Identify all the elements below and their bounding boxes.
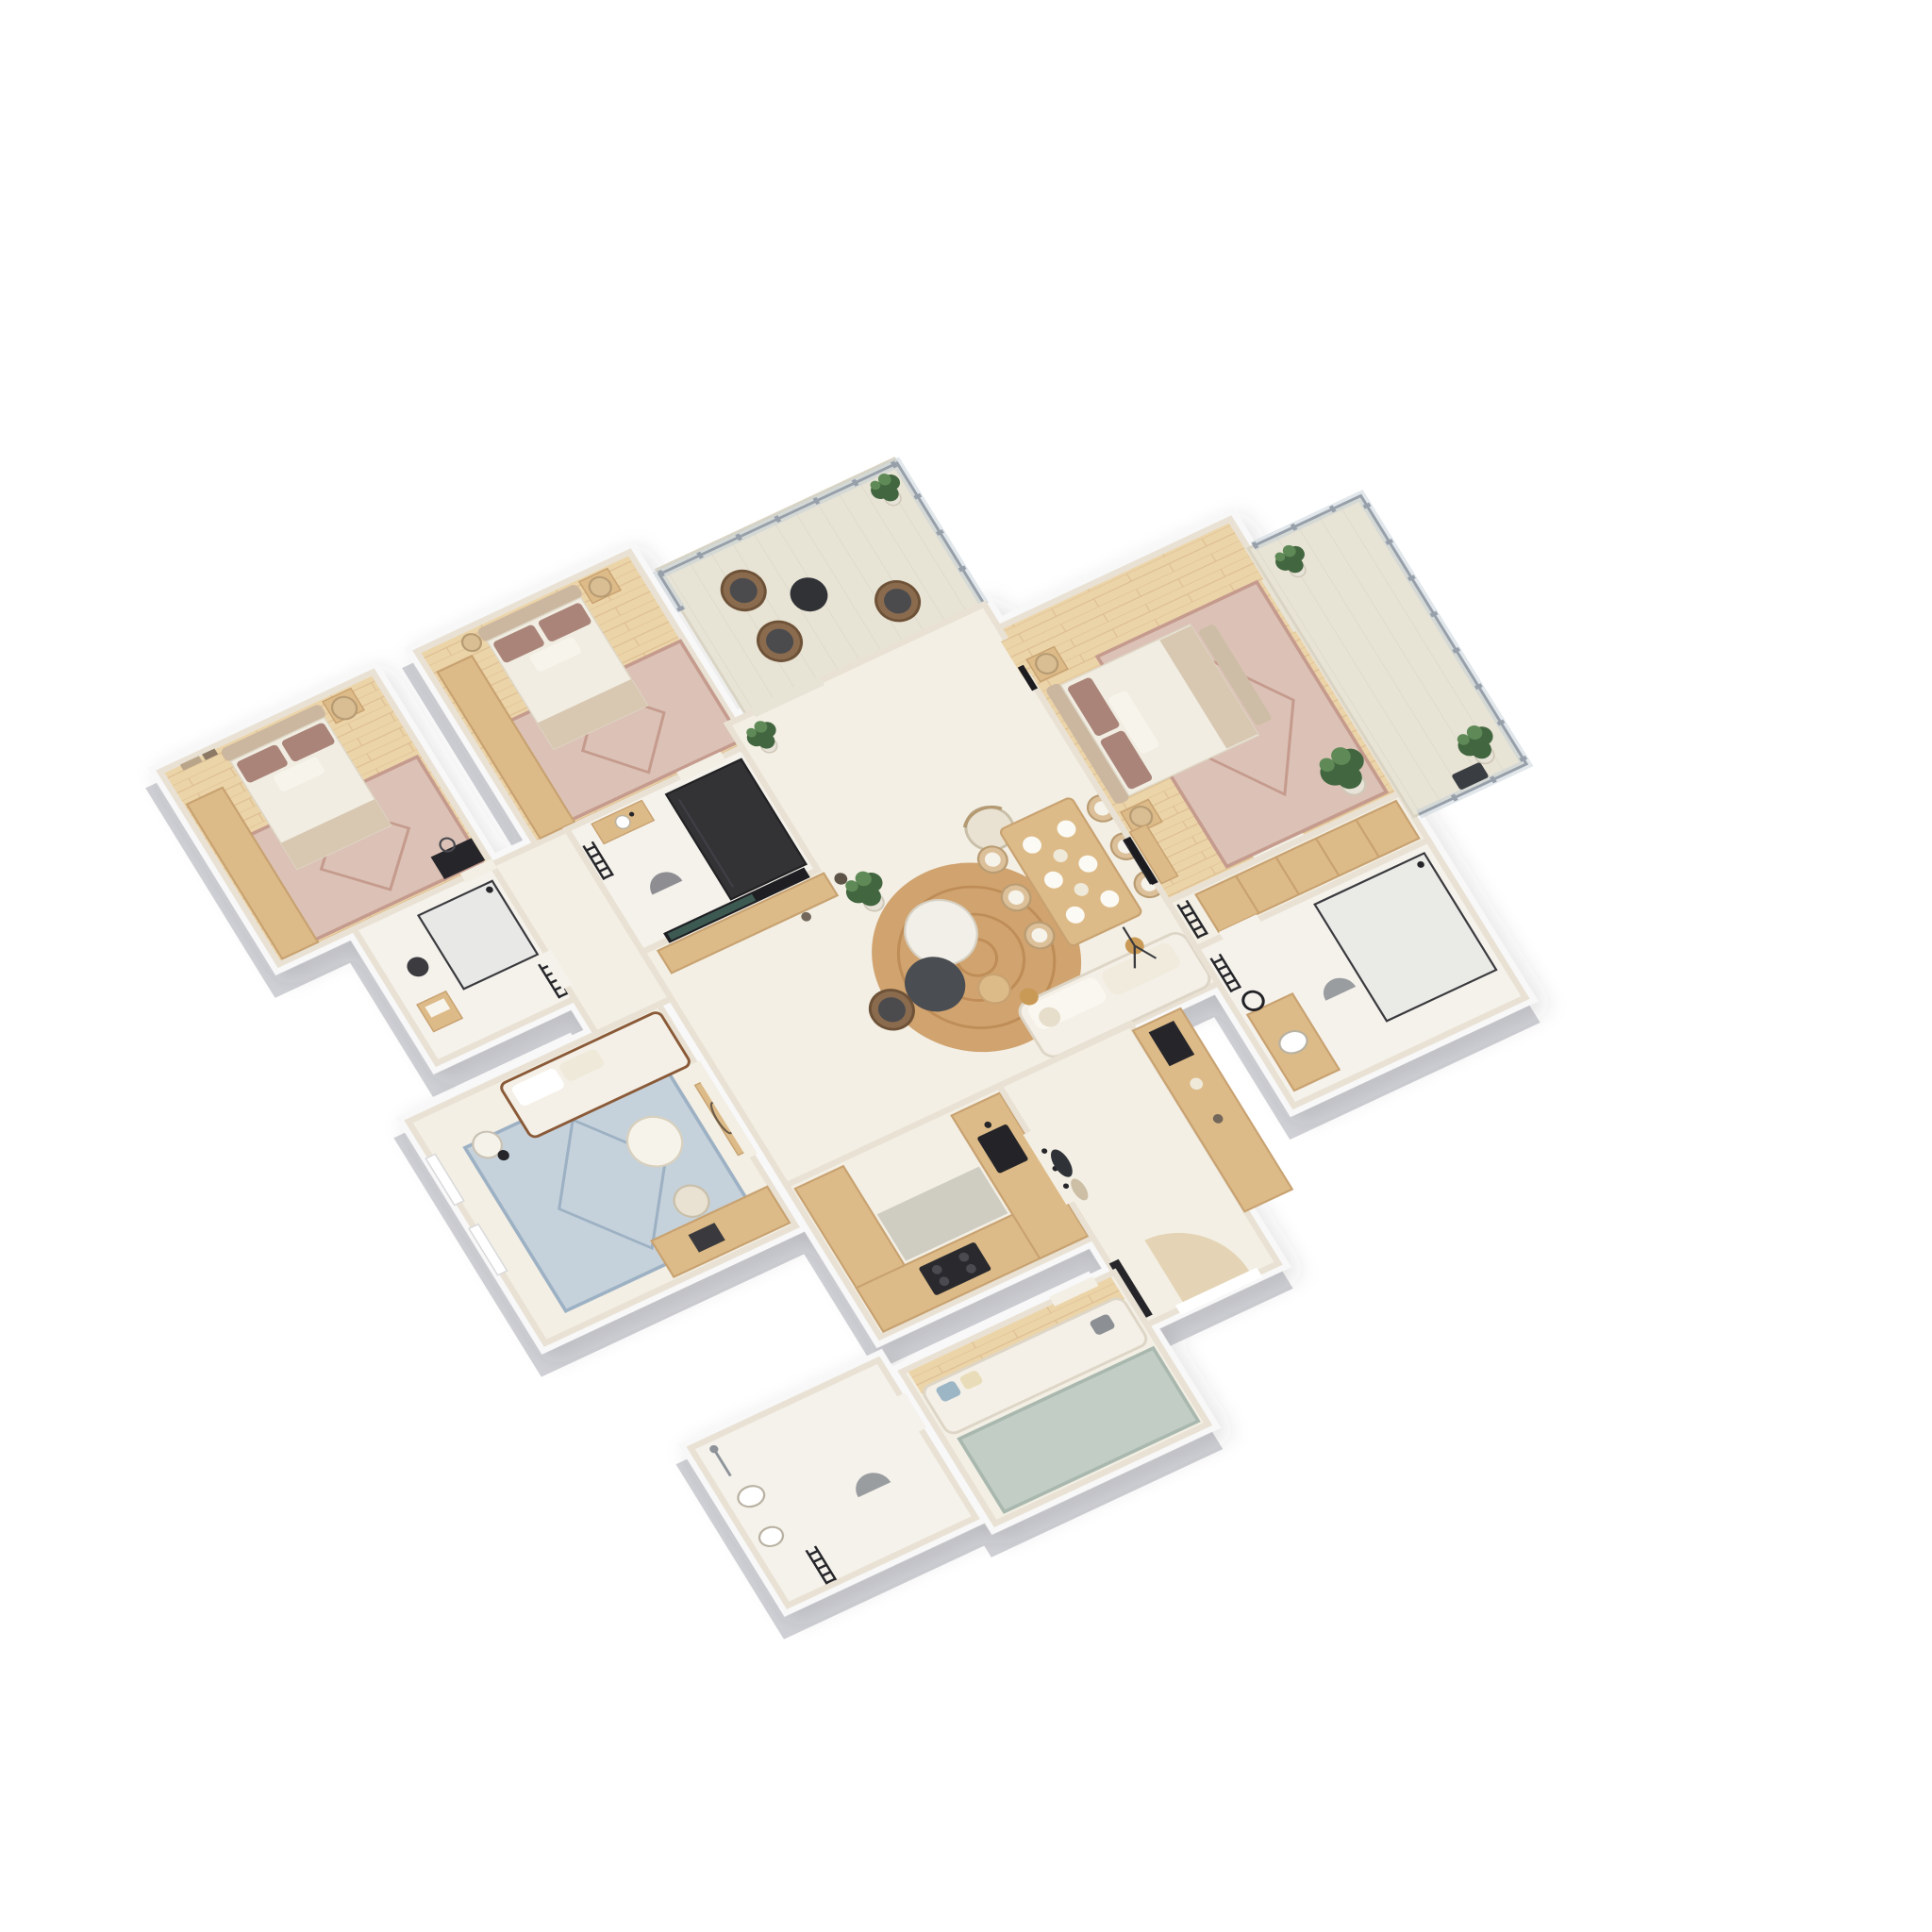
floorplan-svg bbox=[0, 0, 1932, 1932]
floorplan-render bbox=[0, 0, 1932, 1932]
